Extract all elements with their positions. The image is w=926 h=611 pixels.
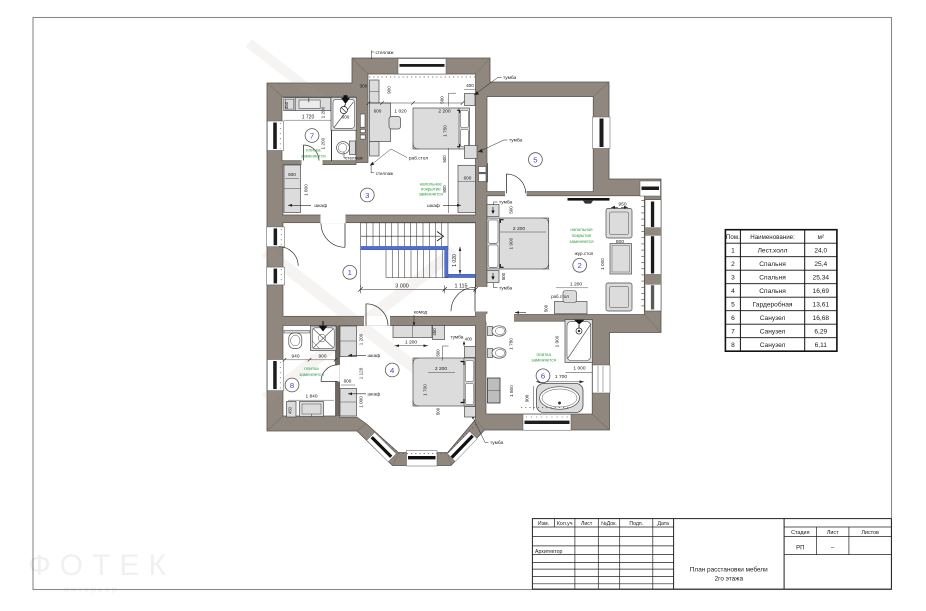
svg-text:8: 8	[731, 342, 735, 349]
svg-text:450: 450	[288, 406, 293, 414]
svg-text:тумба: тумба	[503, 75, 516, 81]
svg-text:Изм.: Изм.	[538, 521, 549, 527]
svg-text:1 200: 1 200	[321, 106, 326, 118]
svg-text:плитка: плитка	[306, 148, 321, 153]
svg-text:Санузел: Санузел	[760, 342, 786, 349]
svg-text:Спальня: Спальня	[759, 261, 786, 268]
svg-text:Наименование:: Наименование:	[750, 234, 795, 241]
svg-text:400: 400	[466, 83, 474, 88]
svg-text:450: 450	[284, 101, 289, 109]
svg-text:1 200: 1 200	[570, 281, 583, 287]
svg-text:600: 600	[464, 176, 472, 181]
svg-text:1 780: 1 780	[509, 338, 514, 350]
svg-text:600: 600	[374, 109, 382, 114]
svg-text:16,68: 16,68	[813, 315, 830, 322]
svg-text:ФОТЕК: ФОТЕК	[28, 549, 175, 582]
svg-text:стеллаж: стеллаж	[375, 50, 394, 55]
svg-text:1 700: 1 700	[423, 384, 428, 396]
svg-text:Гардеробная: Гардеробная	[753, 300, 793, 308]
svg-text:Лест.холл: Лест.холл	[758, 247, 788, 254]
svg-text:плитка: плитка	[536, 352, 551, 357]
svg-text:Дата: Дата	[657, 521, 669, 527]
svg-text:500: 500	[440, 96, 445, 104]
svg-text:300: 300	[360, 84, 368, 89]
svg-text:1 200: 1 200	[405, 340, 418, 346]
svg-text:тумба: тумба	[450, 334, 463, 340]
svg-text:1 020: 1 020	[452, 254, 458, 267]
svg-text:Спальня: Спальня	[759, 274, 786, 281]
svg-text:6: 6	[541, 372, 545, 381]
svg-text:600: 600	[344, 379, 352, 384]
svg-text:1 115: 1 115	[454, 283, 467, 289]
svg-text:шкаф: шкаф	[367, 353, 380, 359]
svg-text:500: 500	[442, 155, 447, 163]
svg-text:Санузел: Санузел	[760, 328, 786, 335]
svg-text:заменяется: заменяется	[419, 192, 444, 197]
svg-text:1 900: 1 900	[555, 335, 560, 347]
svg-text:1 700: 1 700	[555, 374, 568, 380]
svg-text:РП: РП	[796, 546, 804, 552]
svg-text:1 800: 1 800	[304, 184, 309, 196]
svg-text:8: 8	[290, 381, 294, 390]
svg-text:24,0: 24,0	[814, 247, 827, 254]
svg-text:1: 1	[348, 268, 352, 277]
svg-text:заменяется: заменяется	[301, 153, 326, 158]
svg-text:№Док.: №Док.	[601, 521, 617, 527]
svg-text:25,34: 25,34	[813, 274, 830, 281]
svg-text:комод: комод	[414, 311, 428, 316]
svg-text:стеллаж: стеллаж	[376, 171, 393, 176]
svg-text:4: 4	[390, 366, 395, 375]
svg-text:5: 5	[731, 301, 735, 308]
svg-text:2: 2	[731, 261, 735, 268]
svg-text:3: 3	[731, 274, 735, 281]
svg-text:560: 560	[508, 206, 513, 214]
svg-text:Подп.: Подп.	[629, 521, 643, 527]
svg-text:7: 7	[310, 131, 314, 140]
svg-text:интерьер: интерьер	[64, 584, 119, 594]
svg-text:Архитектор: Архитектор	[535, 549, 563, 555]
svg-text:тумба: тумба	[499, 285, 512, 291]
svg-text:1 750: 1 750	[443, 125, 448, 137]
svg-text:3 000: 3 000	[395, 283, 409, 289]
svg-text:5: 5	[533, 156, 537, 165]
svg-text:1: 1	[731, 247, 735, 254]
svg-text:Стадия: Стадия	[791, 530, 809, 536]
svg-text:900: 900	[387, 86, 392, 94]
svg-text:1 840: 1 840	[305, 394, 317, 400]
svg-text:6,11: 6,11	[815, 342, 828, 349]
svg-text:напольное: напольное	[570, 227, 593, 232]
svg-text:3: 3	[365, 191, 369, 200]
svg-text:заменяется: заменяется	[531, 357, 556, 362]
svg-text:1 800: 1 800	[509, 385, 514, 397]
svg-text:Лист: Лист	[581, 521, 593, 527]
svg-text:1 720: 1 720	[302, 115, 315, 121]
svg-text:тумба: тумба	[490, 440, 503, 446]
svg-text:2 200: 2 200	[435, 366, 448, 372]
svg-text:1 200: 1 200	[359, 333, 364, 345]
svg-text:500: 500	[501, 272, 506, 280]
svg-text:16,69: 16,69	[813, 288, 830, 295]
svg-text:тумба: тумба	[499, 200, 512, 206]
svg-text:4: 4	[731, 288, 735, 295]
svg-text:Санузел: Санузел	[760, 315, 786, 322]
svg-text:6,29: 6,29	[814, 328, 827, 335]
svg-text:600: 600	[342, 115, 350, 120]
svg-text:1 200: 1 200	[321, 137, 326, 149]
svg-text:900: 900	[318, 353, 326, 359]
svg-text:раб.стол: раб.стол	[409, 156, 429, 162]
svg-text:2го этажа: 2го этажа	[715, 576, 744, 583]
svg-text:2: 2	[578, 261, 582, 270]
svg-text:13,61: 13,61	[813, 301, 830, 308]
svg-text:Листов: Листов	[861, 530, 879, 536]
svg-text:жур.стол: жур.стол	[575, 251, 594, 256]
svg-text:7: 7	[731, 328, 735, 335]
svg-text:покрытие: покрытие	[572, 233, 592, 238]
svg-text:600: 600	[288, 172, 296, 177]
svg-text:1 900: 1 900	[509, 237, 514, 249]
svg-text:м²: м²	[818, 234, 824, 241]
svg-text:950: 950	[618, 201, 626, 207]
svg-text:2 200: 2 200	[438, 109, 451, 115]
svg-text:2 200: 2 200	[513, 226, 526, 232]
svg-text:стеллаж: стеллаж	[345, 155, 362, 160]
svg-text:940: 940	[291, 353, 299, 359]
svg-text:шкаф: шкаф	[427, 203, 440, 209]
svg-text:1 000: 1 000	[600, 258, 605, 270]
svg-text:заменяется: заменяется	[299, 372, 324, 377]
svg-text:Пом.: Пом.	[726, 234, 740, 241]
svg-text:1 000: 1 000	[359, 396, 364, 408]
svg-text:900: 900	[525, 394, 530, 402]
svg-text:плитка: плитка	[304, 366, 319, 371]
svg-text:шкаф: шкаф	[314, 203, 327, 209]
svg-text:500: 500	[543, 304, 548, 312]
svg-text:6: 6	[731, 315, 735, 322]
svg-text:400: 400	[465, 337, 473, 342]
svg-text:заменяется: заменяется	[569, 239, 594, 244]
svg-text:1 000: 1 000	[573, 366, 586, 372]
svg-text:Спальня: Спальня	[759, 288, 786, 295]
svg-text:800: 800	[616, 239, 624, 245]
svg-text:Лист: Лист	[827, 530, 839, 536]
svg-text:1 120: 1 120	[359, 367, 364, 379]
svg-text:450: 450	[432, 328, 437, 336]
svg-text:500: 500	[436, 407, 441, 415]
svg-text:тумба: тумба	[509, 138, 522, 144]
svg-text:шкаф: шкаф	[367, 391, 380, 397]
svg-text:1 020: 1 020	[394, 109, 407, 115]
svg-text:500: 500	[436, 349, 441, 357]
svg-text:Кол.уч: Кол.уч	[557, 521, 573, 527]
svg-text:План расстановки мебели: План расстановки мебели	[690, 566, 768, 574]
svg-text:раб.стол: раб.стол	[551, 294, 569, 299]
svg-text:25,4: 25,4	[814, 261, 827, 268]
